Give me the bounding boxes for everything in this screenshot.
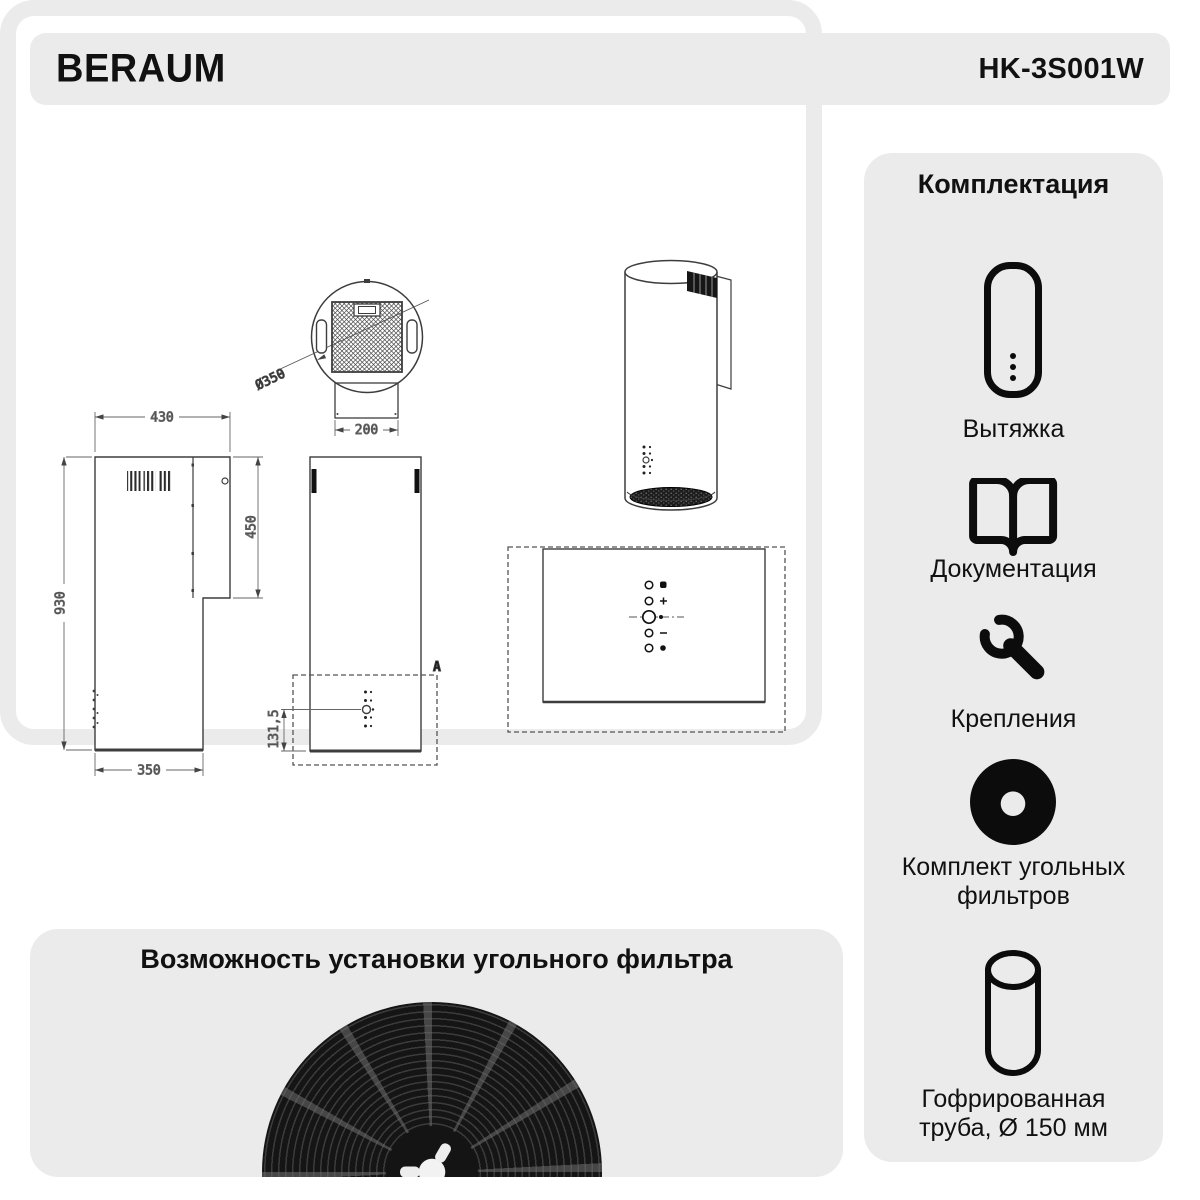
package-item-label: Комплект угольных фильтров (874, 853, 1154, 911)
package-item-label: Гофрированная труба, Ø 150 мм (889, 1085, 1139, 1143)
brand-logo: BERAUM (56, 47, 226, 92)
pipe-icon (981, 948, 1045, 1080)
package-title: Комплектация (864, 169, 1163, 200)
drawings-card (0, 0, 822, 745)
model-number: HK-3S001W (979, 53, 1144, 86)
book-icon (965, 478, 1062, 556)
dim-bottom-width: 350 (137, 764, 160, 779)
hood-icon (984, 262, 1042, 398)
package-item-label: Вытяжка (864, 415, 1163, 444)
package-panel: Комплектация Вытяжка Документация Крепле… (864, 153, 1163, 1162)
wrench-icon (966, 603, 1062, 699)
package-item-label: Крепления (864, 705, 1163, 734)
carbon-filter-panel: Возможность установки угольного фильтра (30, 929, 843, 1177)
carbon-filter-photo (262, 1002, 602, 1177)
carbon-filter-icon (970, 759, 1056, 845)
package-item-label: Документация (864, 555, 1163, 584)
header-bar: BERAUM HK-3S001W (30, 33, 1170, 105)
carbon-filter-title: Возможность установки угольного фильтра (30, 944, 843, 975)
